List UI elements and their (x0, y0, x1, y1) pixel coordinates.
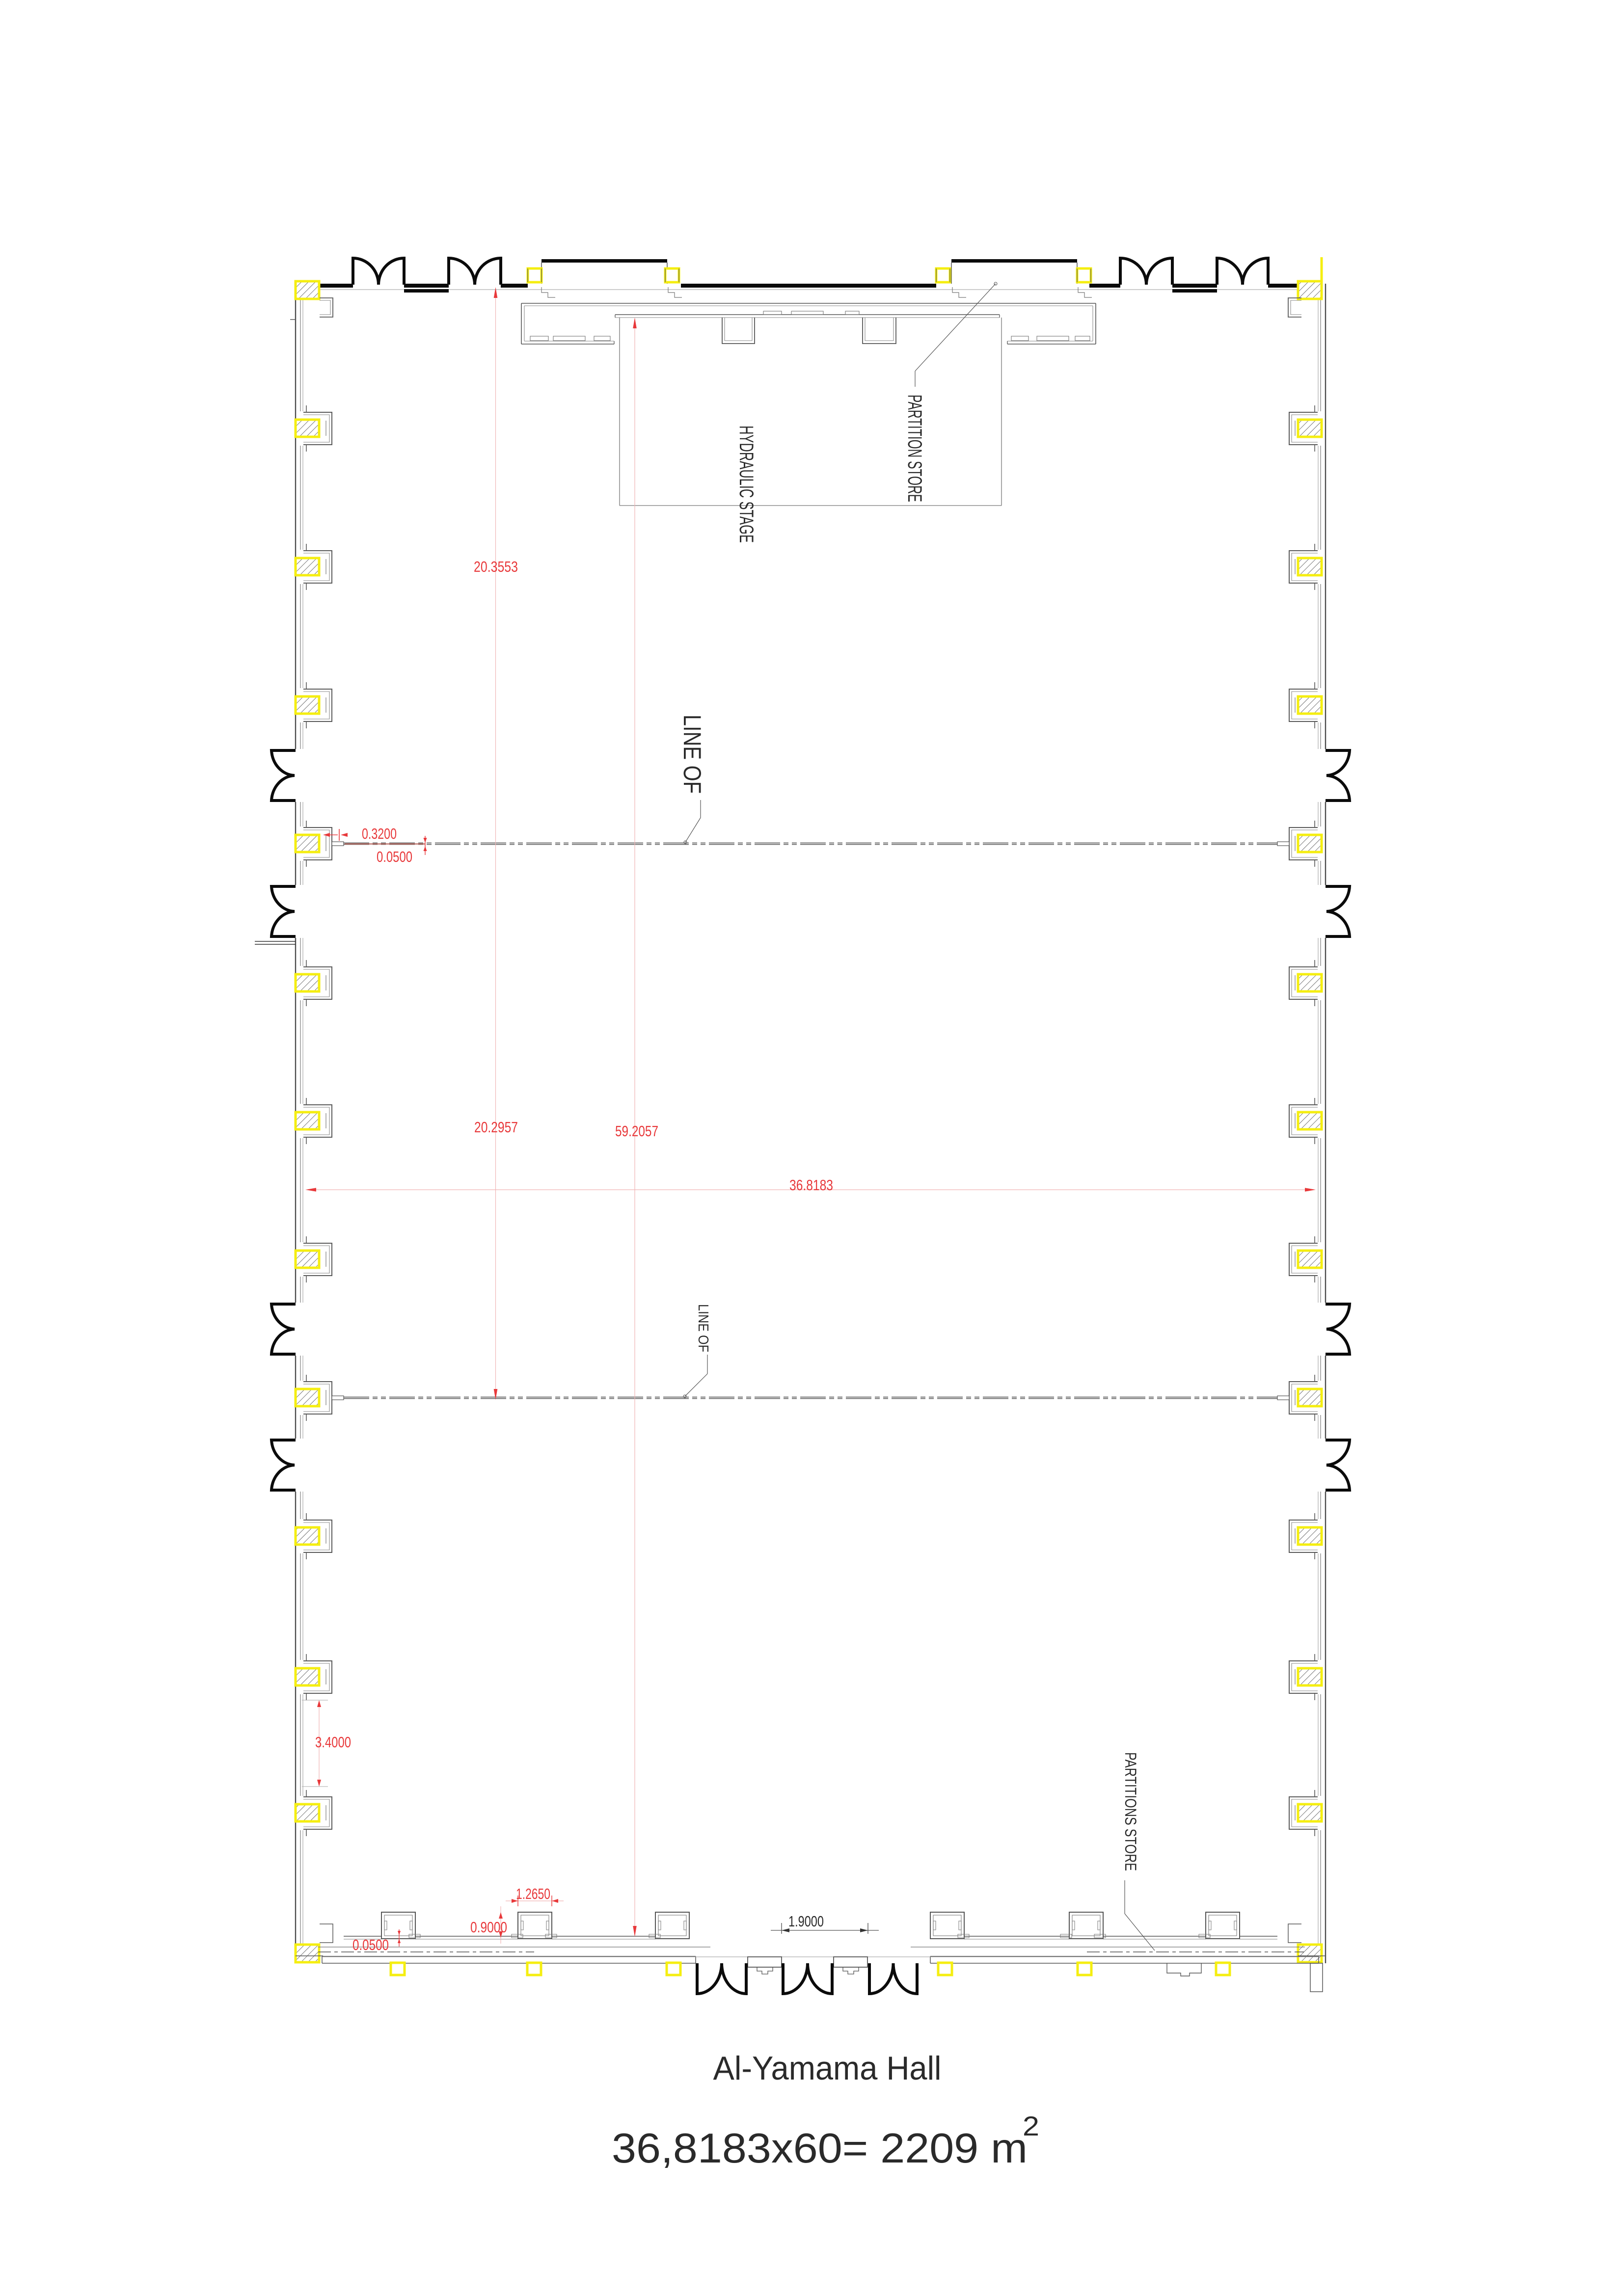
svg-text:2: 2 (1023, 2110, 1039, 2141)
svg-text:1.2650: 1.2650 (516, 1885, 550, 1902)
svg-text:Al-Yamama Hall: Al-Yamama Hall (713, 2050, 942, 2087)
svg-text:PARTITIONS STORE: PARTITIONS STORE (1122, 1752, 1139, 1871)
svg-text:1.9000: 1.9000 (788, 1913, 824, 1930)
svg-text:20.2957: 20.2957 (474, 1119, 518, 1136)
svg-text:3.4000: 3.4000 (315, 1734, 351, 1751)
svg-text:36,8183x60= 2209 m: 36,8183x60= 2209 m (612, 2125, 1028, 2172)
svg-text:0.3200: 0.3200 (362, 825, 397, 842)
svg-text:LINE OF: LINE OF (695, 1304, 711, 1352)
svg-text:LINE OF: LINE OF (678, 715, 706, 794)
svg-text:0.0500: 0.0500 (377, 848, 412, 865)
svg-text:36.8183: 36.8183 (789, 1176, 833, 1194)
svg-text:20.3553: 20.3553 (474, 558, 518, 575)
svg-text:0.0500: 0.0500 (352, 1936, 389, 1953)
svg-text:HYDRAULIC STAGE: HYDRAULIC STAGE (735, 426, 757, 543)
svg-text:0.9000: 0.9000 (470, 1919, 507, 1936)
svg-text:59.2057: 59.2057 (615, 1122, 658, 1140)
svg-text:PARTITION STORE: PARTITION STORE (904, 395, 925, 502)
